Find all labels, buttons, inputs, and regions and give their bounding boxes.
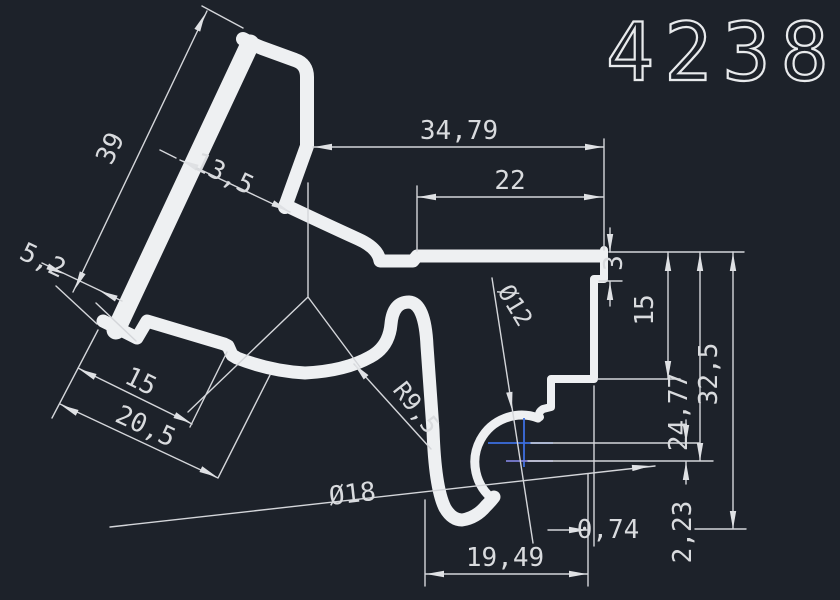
dim-15-left-label: 15 [120,361,161,402]
arrow-34-79-right [585,144,603,150]
arrow-20-5-right [199,466,218,480]
arrow-39-bottom [72,271,86,290]
dim-dia18-label: Ø18 [327,477,377,512]
cad-canvas: 4238 39 13,5 5,2 15 20,5 34,79 22 3 15 2… [0,0,840,600]
profile-arc-dia12 [475,415,538,500]
dim-5-2-label: 5,2 [15,237,70,284]
arrow-19-49-right [569,571,587,577]
dim-2-23-label: 2,23 [668,501,698,564]
arrow-24-77-top [697,253,703,271]
arrow-5-2-right [99,288,118,301]
dim-32-5-label: 32,5 [694,343,724,406]
arrow-24-77-bottom [697,443,703,461]
dim-24-77-label: 24,77 [664,373,694,451]
arrow-20-5-left [60,402,79,416]
dim-0-74-label: 0,74 [577,515,640,545]
arrow-32-5-bottom [730,511,736,529]
leader-dia18-line [110,466,655,527]
arrow-3-bottom [607,282,613,300]
dim-15-right-label: 15 [630,294,660,325]
dim-3-label: 3 [599,255,629,271]
drawing-number: 4238 [606,6,839,99]
arrow-2-23-bottom [683,462,689,480]
arrow-19-49-left [426,571,444,577]
dim-22-label: 22 [494,166,525,196]
arrow-34-79-left [314,144,332,150]
profile-top-band [285,205,601,261]
dim-19-49-label: 19,49 [466,543,544,573]
profile-geometry [103,39,604,520]
cad-viewport: 4238 39 13,5 5,2 15 20,5 34,79 22 3 15 2… [0,0,840,600]
dim-20-5-label: 20,5 [111,400,180,454]
dim-34-79-label: 34,79 [420,116,498,146]
arrow-39-top [194,13,208,32]
arrow-15l-left [78,366,97,380]
dim-39-label: 39 [91,128,132,169]
arrow-dia12 [506,392,515,411]
arrow-22-right [584,194,602,200]
dim-13-5-label: 13,5 [189,147,258,201]
arrow-15r-top [665,253,671,271]
arrow-32-5-top [730,253,736,271]
arrow-22-left [418,194,436,200]
